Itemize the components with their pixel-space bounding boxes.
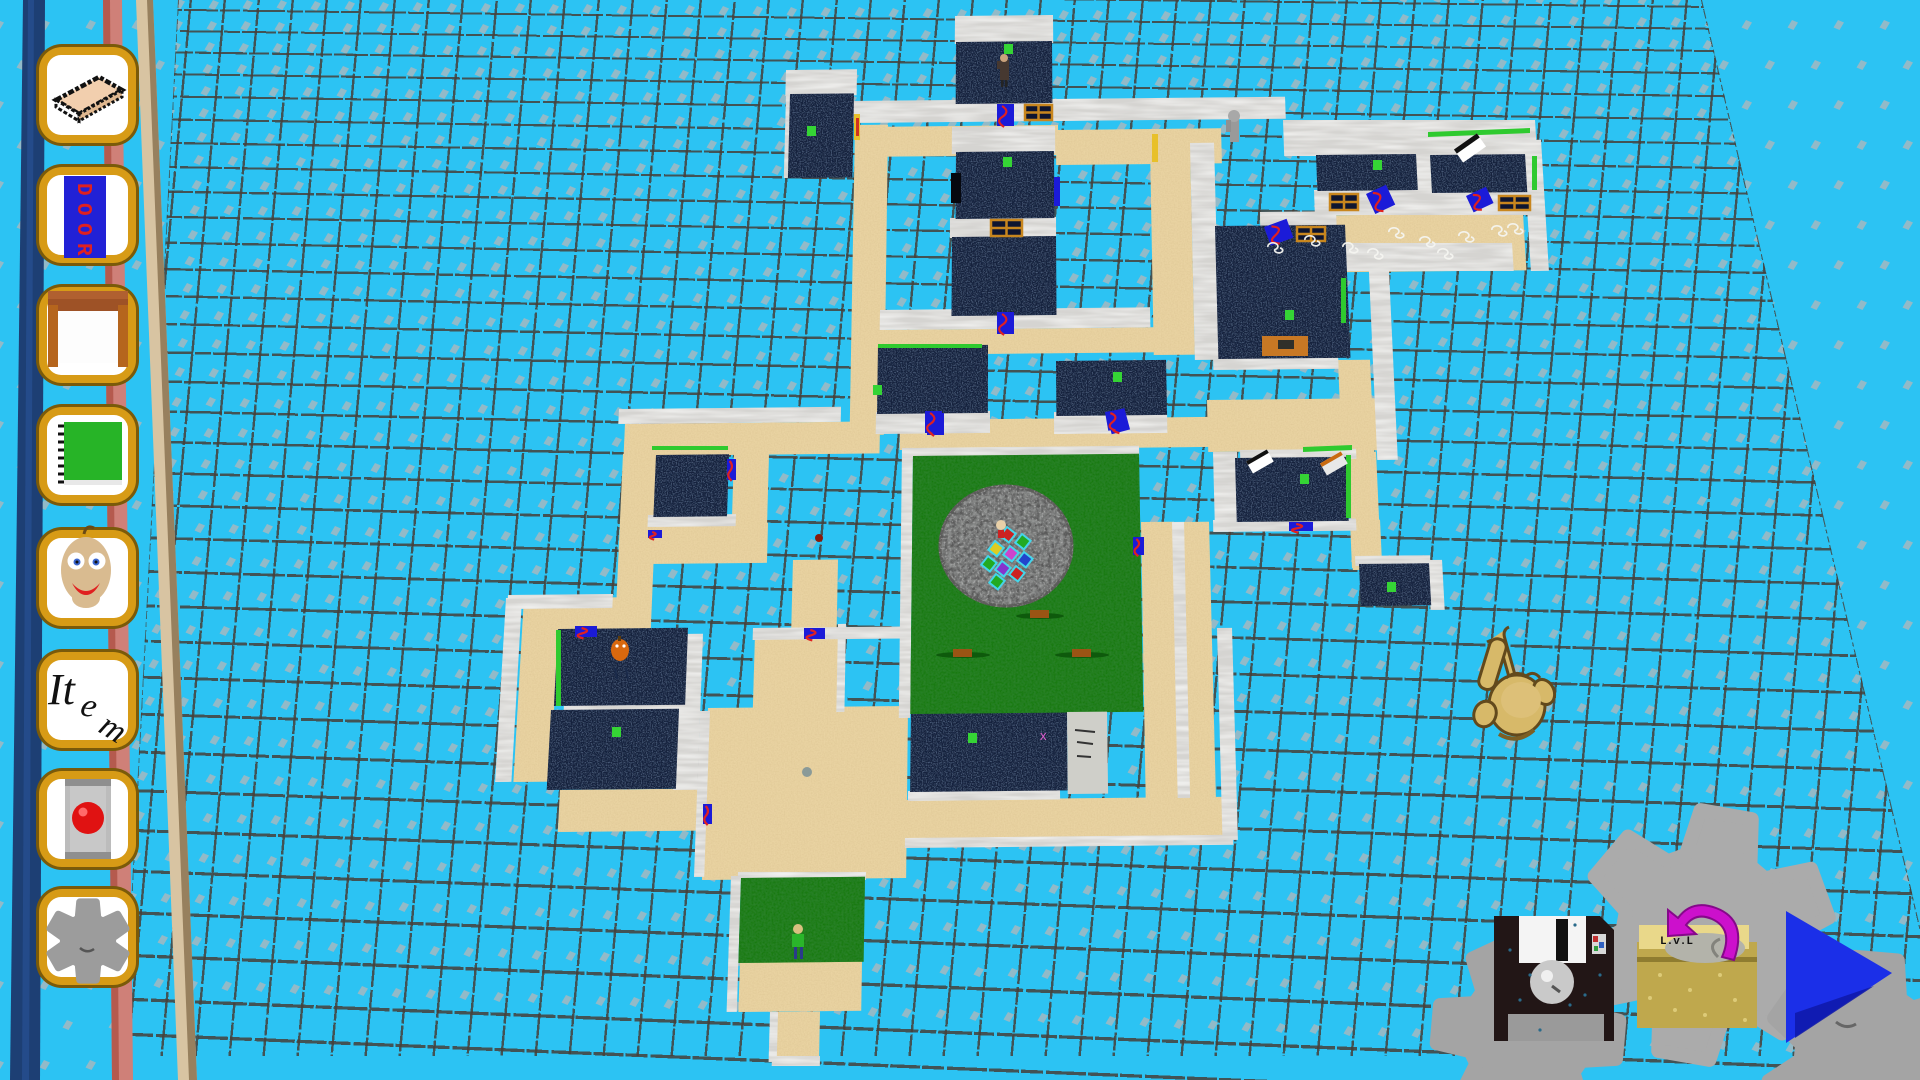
svg-text:It: It xyxy=(47,665,77,714)
svg-text:O: O xyxy=(71,223,94,236)
svg-text:O: O xyxy=(71,203,94,216)
svg-text:R: R xyxy=(71,243,94,256)
svg-text:L.v.L: L.v.L xyxy=(1660,936,1693,948)
svg-text:x: x xyxy=(1040,728,1047,743)
svg-text:D: D xyxy=(71,183,94,196)
